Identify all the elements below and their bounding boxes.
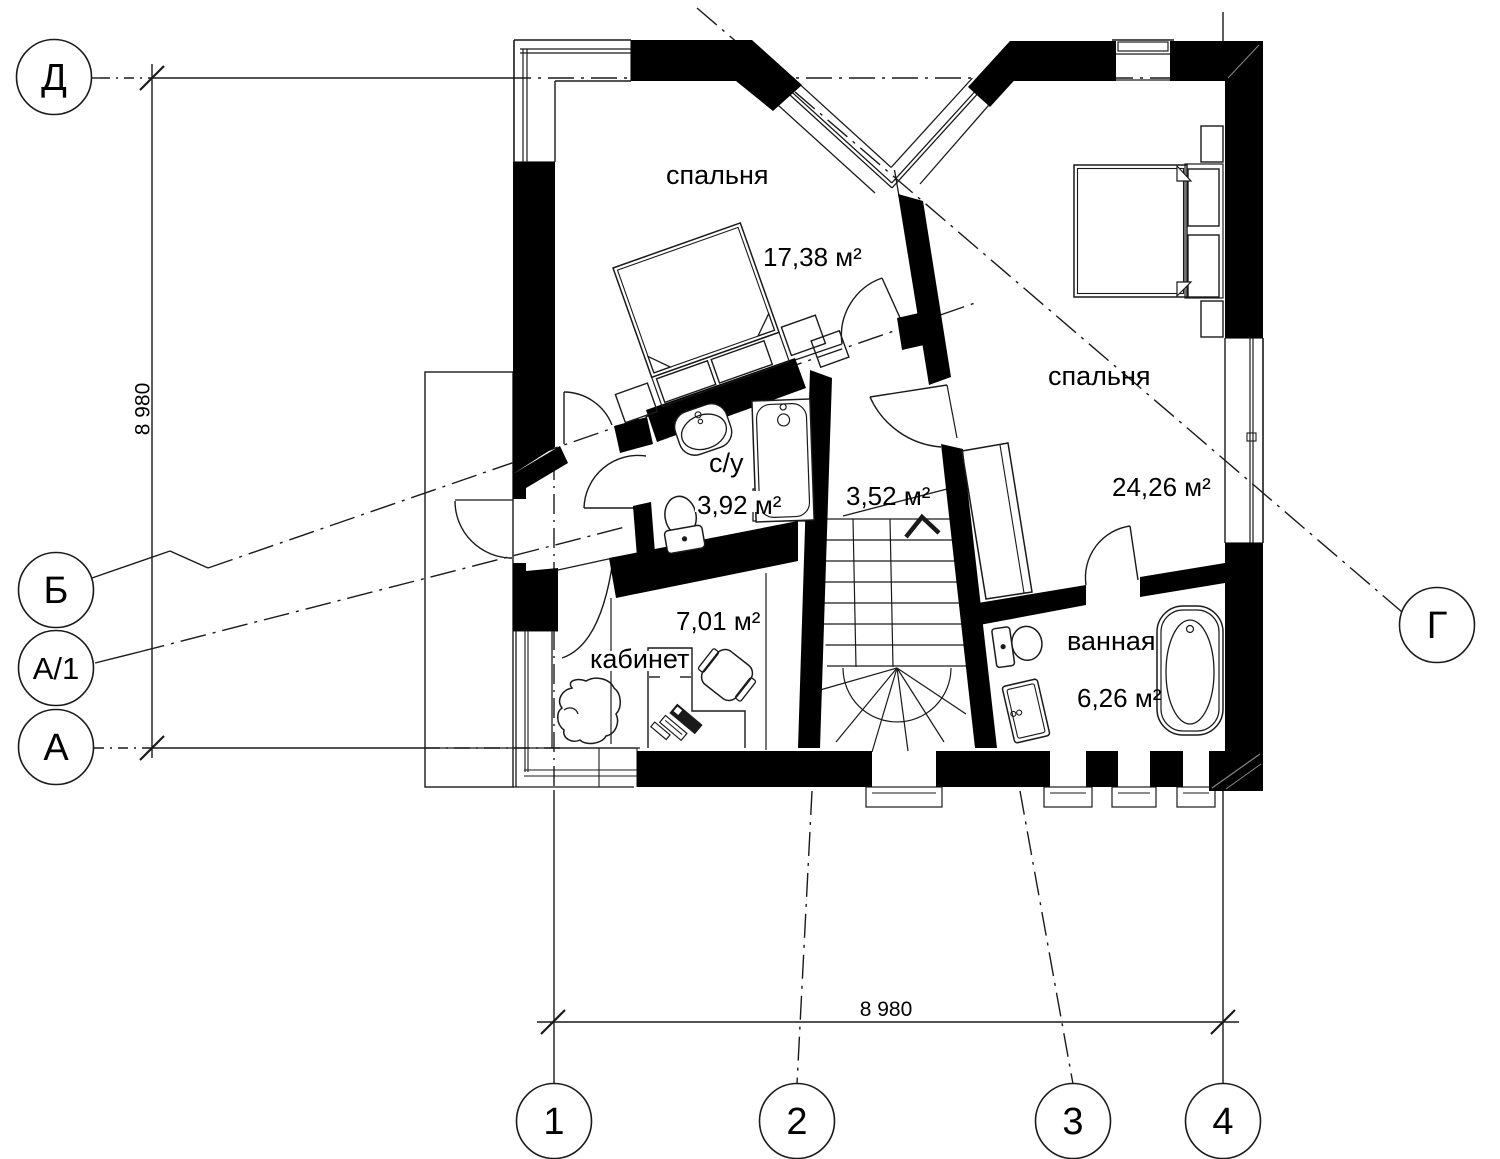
svg-text:8 980: 8 980	[860, 998, 913, 1021]
svg-text:Б: Б	[44, 570, 69, 612]
svg-text:3: 3	[1062, 1101, 1083, 1143]
svg-text:1: 1	[543, 1101, 564, 1143]
svg-text:спальня: спальня	[666, 160, 769, 190]
svg-text:17,38 м²: 17,38 м²	[763, 242, 862, 272]
svg-text:3,92 м²: 3,92 м²	[697, 490, 782, 520]
svg-text:6,26 м²: 6,26 м²	[1077, 683, 1162, 713]
svg-text:Д: Д	[41, 57, 67, 99]
svg-text:ванная: ванная	[1067, 626, 1156, 656]
svg-text:А/1: А/1	[33, 651, 80, 686]
svg-text:4: 4	[1212, 1101, 1233, 1143]
svg-text:24,26 м²: 24,26 м²	[1112, 472, 1211, 502]
svg-text:с/у: с/у	[709, 448, 744, 478]
svg-text:Г: Г	[1427, 605, 1448, 647]
svg-text:8 980: 8 980	[132, 383, 155, 436]
svg-text:2: 2	[786, 1101, 807, 1143]
svg-text:кабинет: кабинет	[590, 644, 689, 674]
svg-text:7,01 м²: 7,01 м²	[676, 606, 761, 636]
svg-text:3,52 м²: 3,52 м²	[846, 481, 931, 511]
svg-text:спальня: спальня	[1048, 361, 1151, 391]
svg-text:А: А	[43, 727, 69, 769]
